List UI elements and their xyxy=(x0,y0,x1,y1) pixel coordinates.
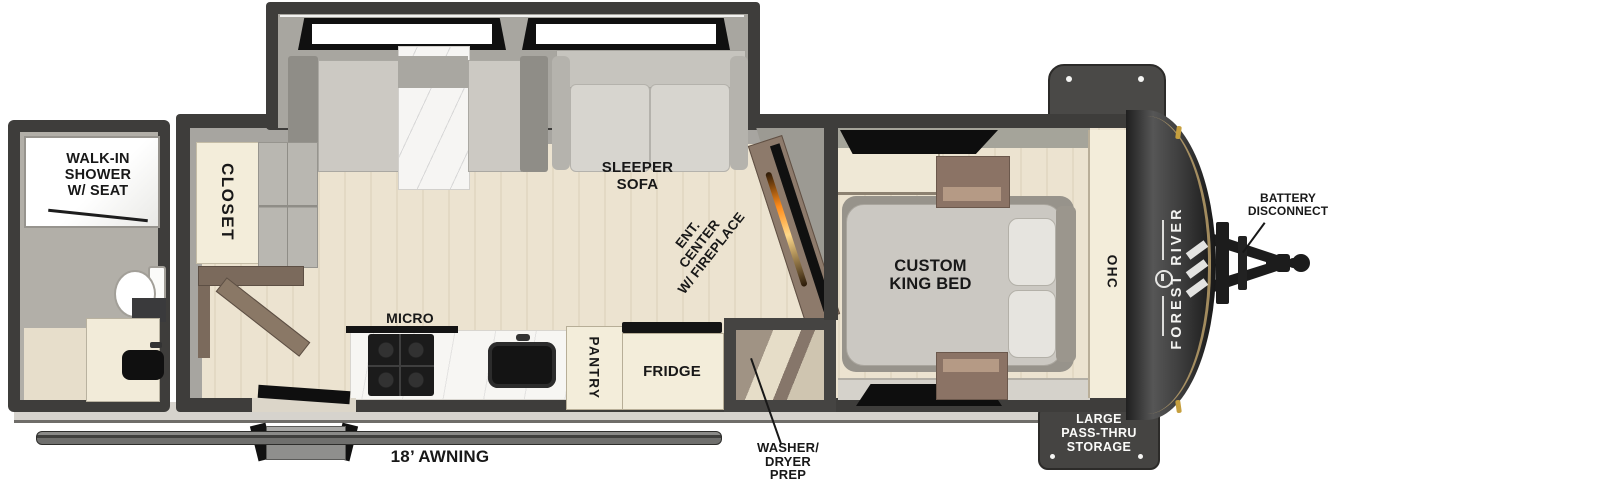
custom-king-bed-label: CUSTOM KING BED xyxy=(858,257,1003,293)
brand-trim-line xyxy=(1162,296,1164,336)
vanity-sink xyxy=(122,350,164,380)
clearance-light xyxy=(1175,400,1182,414)
coupler-body xyxy=(1276,254,1290,272)
bathroom-interior: WALK-IN SHOWER W/ SEAT xyxy=(20,132,158,400)
battery-disconnect-label: BATTERY DISCONNECT xyxy=(1233,192,1343,218)
dinette-bench-seat xyxy=(318,60,400,172)
sofa-armrest xyxy=(552,56,570,170)
slide-out-seam xyxy=(280,15,744,17)
bed-pillow xyxy=(1008,218,1056,286)
dinette-table-runner xyxy=(398,56,468,88)
bathroom-block: WALK-IN SHOWER W/ SEAT xyxy=(8,120,170,412)
bedroom-dresser-top xyxy=(838,148,940,195)
cooktop xyxy=(368,334,434,396)
floorplan-canvas: LARGE PASS-THRU STORAGE WALK-IN SHOWER W… xyxy=(0,0,1600,488)
washer-dryer-label: WASHER/ DRYER PREP xyxy=(735,441,841,482)
dinette-bench-back xyxy=(520,56,548,172)
tongue-crossbar xyxy=(1216,222,1229,304)
closet-label: CLOSET xyxy=(217,163,237,241)
headboard xyxy=(1056,206,1076,362)
dinette-bench-seat xyxy=(468,60,522,172)
awning-bar xyxy=(36,431,722,445)
nightstand-top xyxy=(943,187,1001,201)
sink-faucet xyxy=(516,334,530,341)
sofa-armrest xyxy=(730,56,748,170)
bed-pillow xyxy=(1008,290,1056,358)
ohc-label: OHC xyxy=(1105,255,1120,290)
coupler-ball xyxy=(1292,254,1310,272)
hitch-a-frame xyxy=(1200,216,1312,310)
nightstand xyxy=(936,352,1008,400)
fold-down-desk-top xyxy=(198,266,304,286)
cabinet-bank xyxy=(258,142,318,268)
awning-label: 18’ AWNING xyxy=(380,448,500,467)
storage-screw-dot xyxy=(1138,454,1143,459)
storage-screw-dot xyxy=(1050,454,1055,459)
slide-window-glass xyxy=(312,24,492,44)
nightstand-top xyxy=(943,359,999,372)
sleeper-sofa-label: SLEEPER SOFA xyxy=(580,160,695,193)
bedroom-partition-wall xyxy=(824,128,838,320)
brand-trim-line xyxy=(1162,220,1164,260)
slide-window-glass xyxy=(536,24,716,44)
brand-name: FOREST RIVER xyxy=(1169,206,1185,349)
counter-edge-trim xyxy=(346,326,458,333)
washer-dryer-closet xyxy=(724,318,836,412)
tongue-jack-bar xyxy=(1238,236,1247,290)
micro-label: MICRO xyxy=(370,311,450,326)
fridge-top-trim xyxy=(622,322,722,333)
nightstand xyxy=(936,156,1010,208)
vanity-faucet xyxy=(150,342,162,348)
washer-dryer-closet-interior xyxy=(736,330,824,400)
bedroom-window-top xyxy=(840,130,998,154)
kitchen-sink xyxy=(488,342,556,388)
walk-in-shower-label: WALK-IN SHOWER W/ SEAT xyxy=(38,152,158,200)
compartment-screw-dot xyxy=(1138,76,1144,82)
sofa-back xyxy=(556,50,746,88)
pantry-label: PANTRY xyxy=(587,337,602,400)
compartment-screw-dot xyxy=(1066,76,1072,82)
fridge-label: FRIDGE xyxy=(622,364,722,381)
logo-inner-mark xyxy=(1161,274,1164,281)
